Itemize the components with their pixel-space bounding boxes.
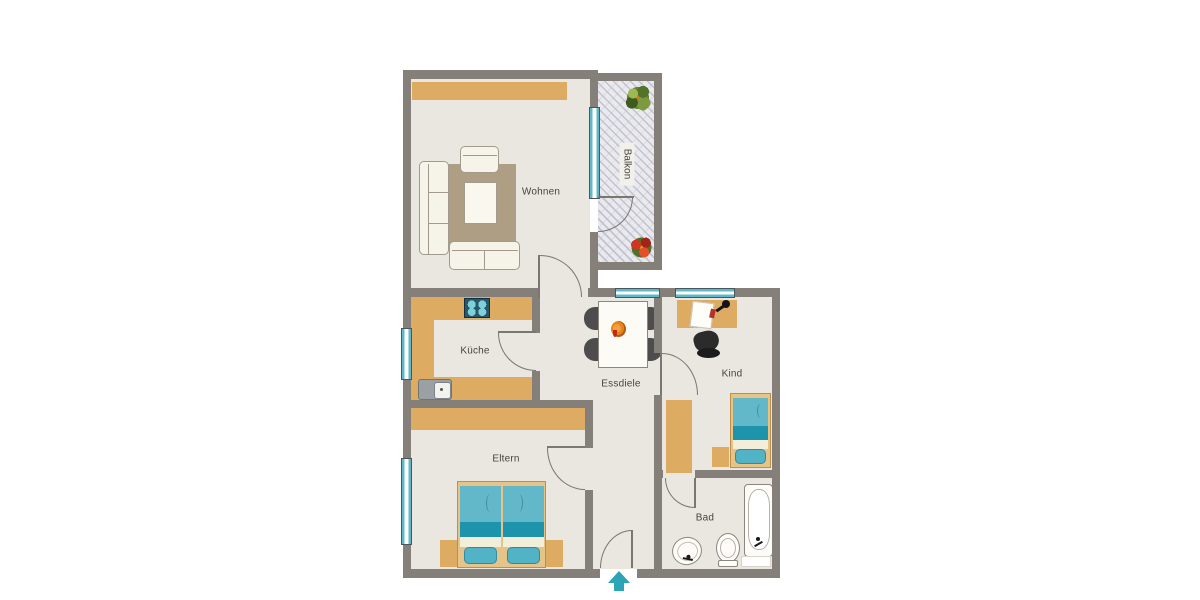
balcony-wall [598,73,662,81]
wall [403,569,600,578]
sofa-left-icon [419,161,449,255]
wall [403,400,593,408]
room-label-wohnen: Wohnen [522,187,560,198]
sink-icon [418,379,452,400]
plant-icon [624,84,652,112]
wall [654,478,662,569]
room-label-kind: Kind [722,369,743,380]
room-label-kueche: Küche [460,346,489,357]
wall [403,70,598,79]
window-eltern [401,458,412,545]
wall [654,297,662,353]
flower-icon [628,234,655,261]
room-label-essdiele: Essdiele [601,379,640,390]
room-label-eltern: Eltern [492,454,519,465]
sofa-bottom-icon [449,241,520,270]
office-chair-base-icon [697,348,720,358]
sideboard-icon [412,82,567,100]
wardrobe-eltern-icon [410,408,587,430]
window-essdiele [615,288,660,298]
nightstand-kind-icon [712,447,729,467]
nightstand-right-icon [546,540,563,567]
stove-icon [464,298,490,318]
entrance-arrow-icon [608,571,630,583]
wall [637,569,780,578]
bathtub-icon [744,484,773,557]
coffee-table-icon [464,182,497,224]
double-bed-icon [457,481,546,568]
wall [532,371,540,403]
wall [585,490,593,569]
wardrobe-kind-icon [666,400,692,473]
fruit-icon [613,330,617,337]
bed-kind-icon [730,393,771,468]
room-label-bad: Bad [696,513,714,524]
window-kind [675,288,735,298]
desk-icon [677,300,737,328]
toilet-base-icon [718,560,738,567]
window-kueche [401,328,412,380]
window-balkon-door [589,107,600,199]
armchair-icon [460,146,499,173]
wall [654,395,662,478]
wall [772,288,780,578]
wall [532,297,540,333]
wall [654,470,663,478]
toilet-icon [716,533,740,563]
wall [695,470,780,478]
entrance-arrow-stem [614,583,624,591]
balcony-wall [590,262,662,270]
balcony-wall [654,73,662,270]
bath-mat-icon [741,556,771,567]
wall [403,288,540,297]
wall [590,70,598,110]
nightstand-left-icon [440,540,457,567]
floor-plan: Wohnen Balkon Küche Essdiele Kind Eltern… [0,0,1200,600]
room-label-balkon: Balkon [620,143,635,186]
wall [585,400,593,448]
